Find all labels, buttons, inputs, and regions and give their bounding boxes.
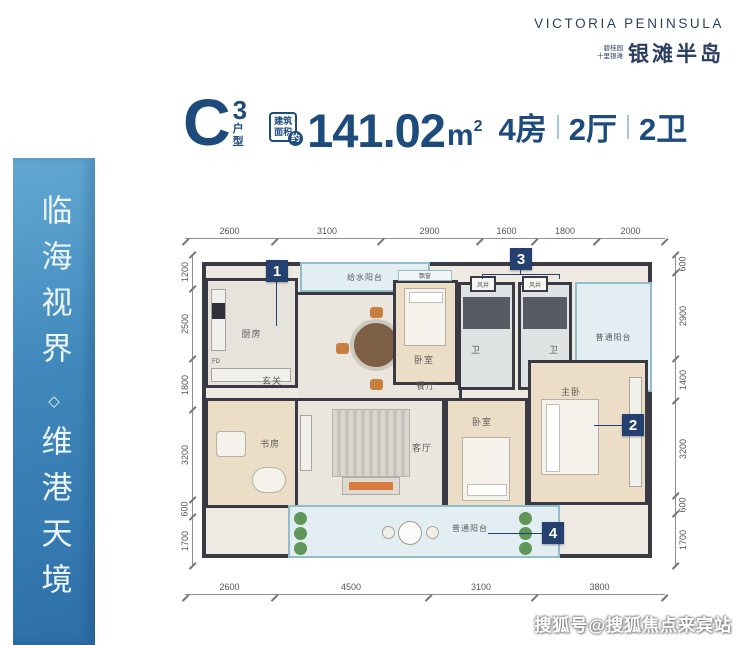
layout-baths: 2卫 (639, 104, 687, 149)
room-label: 飘窗 (419, 271, 431, 280)
kitchen-counter (211, 289, 226, 351)
callout-bracket-3 (482, 274, 560, 275)
dim-value: 2900 (678, 306, 688, 326)
pillow (467, 484, 507, 496)
dim-value: 2500 (180, 314, 190, 334)
dim-value: 3100 (428, 580, 534, 595)
callout-badge-2: 2 (622, 414, 644, 436)
room-living: 客厅 (298, 398, 445, 508)
room-bedroom-top: 卧室 (393, 280, 458, 385)
vent-shaft: 风井 (470, 276, 496, 292)
room-label: 卧室 (472, 415, 492, 428)
room-label: 客厅 (412, 441, 432, 454)
dim-value: 1700 (180, 531, 190, 551)
outdoor-chair (426, 526, 439, 539)
room-bath-1: 卫 (458, 282, 515, 390)
master-bed (541, 399, 599, 475)
callout-line-2 (594, 425, 622, 426)
callout-badge-1: 1 (266, 260, 288, 282)
area-label-box: 建筑 面积 约 (269, 112, 297, 142)
dimension-line-right: 600 2900 1400 3200 600 1700 (675, 255, 690, 565)
dim-value: 1200 (180, 262, 190, 282)
area-value: 141.02 (307, 111, 445, 151)
layout-halls: 2厅 (569, 104, 617, 149)
dim-value: 2000 (596, 224, 665, 239)
bed (462, 437, 510, 501)
pillow (546, 404, 560, 472)
callout-line-1 (276, 282, 277, 326)
dim-value: 3200 (678, 438, 688, 458)
unit-title: C 3 户型 建筑 面积 约 141.02 m2 4房 2厅 2卫 (183, 93, 687, 151)
watermark: 搜狐号@搜狐焦点来宾站 (534, 611, 732, 636)
room-kitchen: 厨房 FD (205, 278, 298, 388)
area-label-line1: 建筑 (274, 116, 292, 127)
dim-value: 1400 (678, 370, 688, 390)
banner-slogan-2: 维港天境 (39, 425, 70, 609)
dim-value: 3800 (534, 580, 665, 595)
outdoor-chair (382, 526, 395, 539)
chair (336, 343, 349, 354)
dim-value: 3200 (180, 445, 190, 465)
desk (216, 431, 246, 457)
bay-window: 飘窗 (398, 270, 452, 281)
room-label: 风井 (529, 280, 541, 289)
area-approx-circle: 约 (288, 131, 303, 146)
sofa-cushion (349, 482, 393, 490)
dimension-line-top: 2600 3100 2900 1600 1800 2000 (185, 224, 665, 239)
plant-icon (519, 512, 532, 525)
floorplan: 2600 3100 2900 1600 1800 2000 2600 4500 … (170, 222, 715, 622)
room-label: 普通阳台 (452, 523, 488, 534)
dim-value: 2600 (185, 580, 274, 595)
dim-value: 4500 (274, 580, 428, 595)
callout-badge-3: 3 (510, 248, 532, 270)
separator-bar (627, 115, 629, 139)
bed (404, 288, 446, 346)
plant-icon (519, 542, 532, 555)
side-banner: 临海视界 ◇ 维港天境 (13, 158, 95, 645)
rug (332, 409, 410, 477)
room-label: 风井 (477, 280, 489, 289)
shower-area (523, 297, 567, 329)
stove-icon (212, 303, 225, 319)
room-label: 给水阳台 (347, 272, 383, 283)
dim-value: 2600 (185, 224, 274, 239)
brand-name-cn: 银滩半岛 (628, 38, 724, 68)
chair (370, 379, 383, 390)
callout-line-4 (488, 533, 542, 534)
room-study: 书房 (205, 398, 298, 508)
room-label: 书房 (260, 437, 280, 450)
layout-summary: 4房 2厅 2卫 (499, 104, 688, 149)
callout-bracket-3-right (559, 274, 560, 279)
dim-value: 600 (678, 256, 688, 271)
dim-value: 3100 (274, 224, 380, 239)
room-label: 卫 (549, 343, 559, 356)
unit-type-letter: C (183, 93, 231, 151)
dim-value: 1800 (534, 224, 596, 239)
room-label-foyer: 玄关 (262, 374, 282, 387)
dim-value: 600 (678, 497, 688, 512)
area-unit-superscript: 2 (474, 118, 483, 135)
room-label: 普通阳台 (596, 332, 632, 343)
plant-icon (294, 512, 307, 525)
plant-icon (294, 542, 307, 555)
layout-rooms: 4房 (499, 104, 547, 149)
armchair (252, 467, 286, 493)
room-label: 餐厅 (416, 379, 436, 392)
unit-type-superscript: 3 (233, 97, 247, 123)
vent-shaft: 风井 (522, 276, 548, 292)
room-label: 卫 (471, 343, 481, 356)
dimension-line-bottom: 2600 4500 3100 3800 (185, 580, 665, 595)
tv-cabinet (300, 415, 312, 471)
plant-icon (294, 527, 307, 540)
chair (370, 307, 383, 318)
dim-value: 1800 (180, 374, 190, 394)
room-balcony-bottom: 普通阳台 (288, 505, 560, 558)
brand-logo: VICTORIA PENINSULA 碧桂园 十里银滩 银滩半岛 (534, 16, 724, 68)
dim-value: 1700 (678, 529, 688, 549)
shower-area (463, 297, 510, 329)
brand-tagline: 碧桂园 十里银滩 (597, 45, 623, 61)
room-bedroom-bottom: 卧室 (445, 398, 528, 508)
diamond-icon: ◇ (48, 394, 60, 409)
pillow (409, 292, 443, 303)
separator-bar (557, 115, 559, 139)
callout-badge-4: 4 (542, 522, 564, 544)
dim-value: 1600 (479, 224, 534, 239)
area-unit: m2 (447, 119, 483, 151)
brand-name-en: VICTORIA PENINSULA (534, 16, 724, 31)
outdoor-table (398, 521, 422, 545)
room-label: 主卧 (561, 385, 581, 398)
dim-value: 600 (180, 501, 190, 516)
banner-slogan-1: 临海视界 (39, 194, 70, 378)
brand-tagline-line2: 十里银滩 (597, 53, 623, 61)
room-label: 卧室 (414, 353, 434, 366)
brand-tagline-line1: 碧桂园 (597, 45, 623, 53)
callout-bracket-3-left (482, 274, 483, 279)
sofa (342, 477, 400, 495)
floor-drain-label: FD (212, 359, 220, 365)
room-label: 厨房 (241, 327, 261, 340)
poster-page: VICTORIA PENINSULA 碧桂园 十里银滩 银滩半岛 C 3 户型 … (0, 0, 740, 645)
dim-value: 2900 (380, 224, 479, 239)
dimension-line-left: 1200 2500 1800 3200 600 1700 (178, 255, 193, 565)
unit-type-label: 户型 (233, 123, 246, 149)
